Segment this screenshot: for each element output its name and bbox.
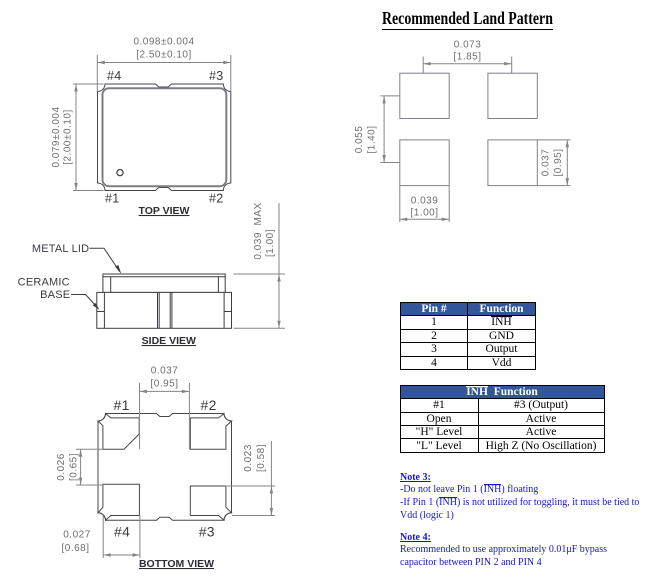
svg-text:SIDE VIEW: SIDE VIEW <box>142 335 196 347</box>
svg-text:[0.95]: [0.95] <box>553 148 564 176</box>
svg-text:#3: #3 <box>209 69 224 83</box>
svg-text:[2.00±0.10]: [2.00±0.10] <box>63 109 74 164</box>
svg-text:[1.85]: [1.85] <box>453 52 481 63</box>
svg-text:0.079±0.004: 0.079±0.004 <box>51 106 62 167</box>
svg-text:[1.40]: [1.40] <box>367 125 378 153</box>
svg-text:0.039: 0.039 <box>411 196 439 207</box>
svg-text:BASE: BASE <box>40 289 70 301</box>
svg-text:TOP VIEW: TOP VIEW <box>139 205 190 217</box>
svg-text:#2: #2 <box>209 192 224 206</box>
svg-text:0.037: 0.037 <box>541 149 552 177</box>
svg-text:0.026: 0.026 <box>56 453 67 481</box>
svg-text:0.039 MAX: 0.039 MAX <box>253 202 264 259</box>
svg-text:0.023: 0.023 <box>243 444 254 472</box>
svg-text:[0.65]: [0.65] <box>69 453 80 481</box>
svg-text:#4: #4 <box>114 523 130 539</box>
svg-text:CERAMIC: CERAMIC <box>18 277 70 289</box>
svg-text:#3: #3 <box>199 523 215 539</box>
svg-text:[1.00]: [1.00] <box>410 208 438 219</box>
svg-text:0.027: 0.027 <box>63 530 91 541</box>
svg-text:#4: #4 <box>107 69 122 83</box>
svg-text:[0.95]: [0.95] <box>150 379 178 390</box>
svg-text:#2: #2 <box>201 397 217 413</box>
svg-text:METAL LID: METAL LID <box>32 243 89 255</box>
svg-text:0.073: 0.073 <box>454 40 482 51</box>
svg-text:0.098±0.004: 0.098±0.004 <box>133 37 194 48</box>
svg-text:[0.68]: [0.68] <box>61 543 89 554</box>
svg-text:#1: #1 <box>114 397 130 413</box>
svg-text:0.037: 0.037 <box>151 366 179 377</box>
svg-text:0.055: 0.055 <box>354 126 365 154</box>
svg-text:[2.50±0.10]: [2.50±0.10] <box>136 50 191 61</box>
svg-text:[1.00]: [1.00] <box>265 229 276 257</box>
svg-text:#1: #1 <box>105 192 120 206</box>
svg-text:[0.58]: [0.58] <box>256 444 267 472</box>
svg-text:BOTTOM VIEW: BOTTOM VIEW <box>139 558 214 570</box>
